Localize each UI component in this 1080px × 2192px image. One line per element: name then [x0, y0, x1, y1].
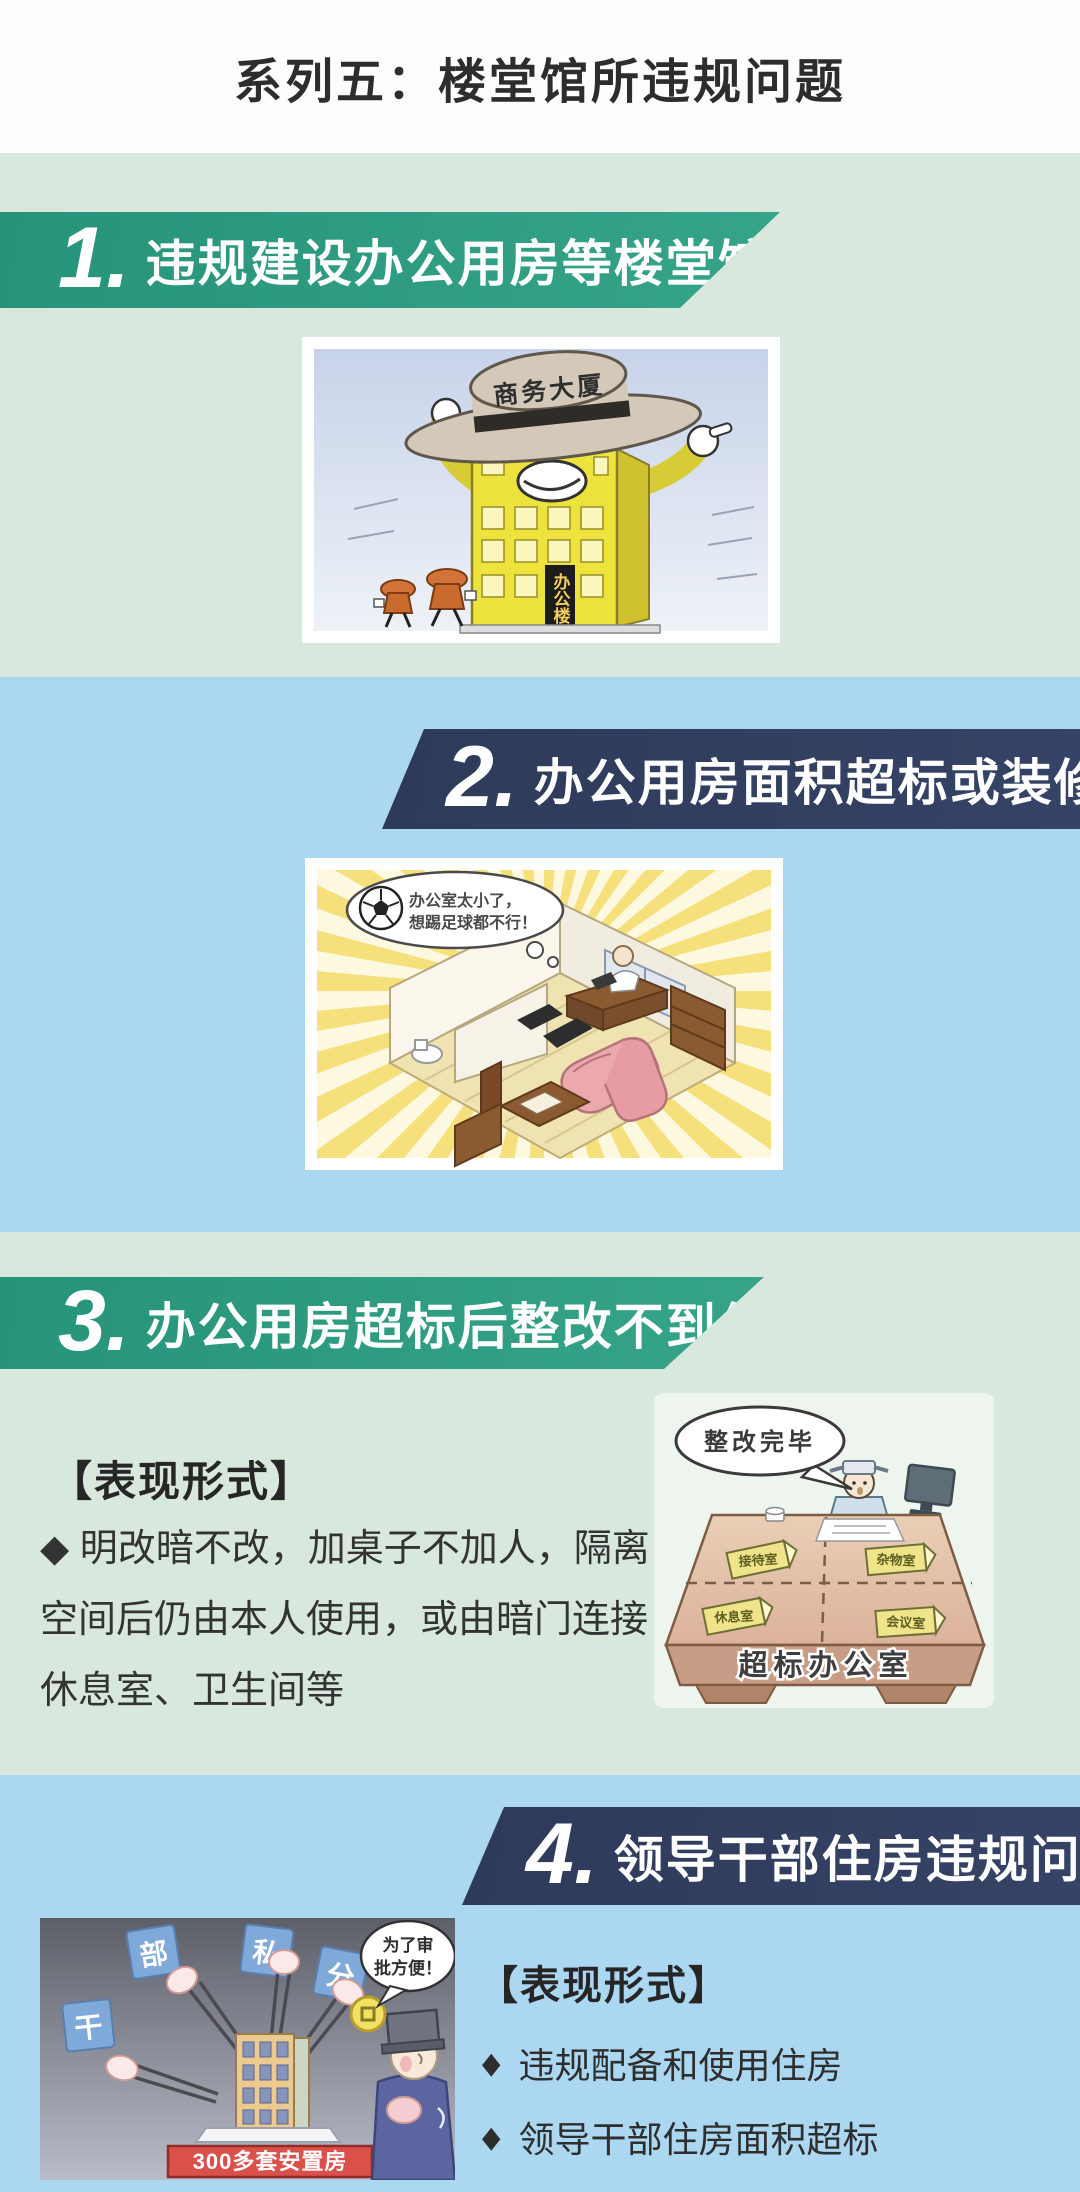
section-3-banner: 3. 办公用房超标后整改不到位	[0, 1277, 764, 1369]
monitor	[903, 1465, 955, 1520]
svg-text:300多套安置房: 300多套安置房	[193, 2149, 348, 2174]
section-4-format-heading: 【表现形式】	[478, 1953, 730, 2011]
section-4-title: 领导干部住房违规问题	[614, 1820, 1080, 1892]
section-3-format-heading: 【表现形式】	[50, 1448, 314, 1509]
bubble-line-2: 批方便！	[374, 1958, 442, 1978]
section-2-number: 2.	[446, 734, 534, 820]
smile-mouth	[518, 461, 586, 501]
desk-leg	[876, 1685, 956, 1703]
diamond-bullet-icon: ◆	[482, 2045, 500, 2081]
svg-text:会议室: 会议室	[886, 1614, 926, 1632]
section-4-bullet-2: ◆ 领导干部住房面积超标	[482, 2111, 878, 2163]
resettlement-building	[196, 2034, 340, 2142]
speech-bubble: 办公室太小了， 想踢足球都不行！	[347, 872, 563, 967]
section-2-title: 办公用房面积超标或装修超标	[534, 743, 1080, 815]
official-with-coin: 为了审 批方便！	[351, 1921, 455, 2180]
bubble-line-2: 想踢足球都不行！	[408, 913, 537, 932]
svg-text:休息室: 休息室	[713, 1608, 754, 1625]
office-room-cartoon: 办公室太小了， 想踢足球都不行！	[305, 858, 783, 1170]
section-3-number: 3.	[58, 1278, 146, 1364]
section-4-bullet-1: ◆ 违规配备和使用住房	[482, 2037, 842, 2089]
page-title: 系列五：楼堂馆所违规问题	[234, 42, 846, 112]
speech-bubble: 整改完毕	[676, 1407, 852, 1489]
svg-text:干: 干	[73, 2011, 104, 2045]
red-banner: 300多套安置房	[168, 2146, 372, 2177]
section-3: 3. 办公用房超标后整改不到位 【表现形式】 ◆ 明改暗不改，加桌子不加人，隔离…	[0, 1232, 1080, 1775]
illustration-housing-division: 干 部 私 分	[40, 1918, 455, 2180]
desk-leg	[696, 1685, 776, 1703]
svg-text:接待室: 接待室	[738, 1551, 778, 1569]
report-paper	[816, 1519, 904, 1541]
bubble-line-1: 为了审	[383, 1935, 434, 1955]
section-4: 4. 领导干部住房违规问题 干 部 私 分	[0, 1775, 1080, 2192]
section-1-number: 1.	[58, 215, 146, 301]
desk-cartoon: 接待室 杂物室 休息室 会议室 超标办公室	[654, 1393, 994, 1708]
bullet-text: 违规配备和使用住房	[518, 2037, 842, 2089]
illustration-oversized-office: 办公室太小了， 想踢足球都不行！	[305, 858, 783, 1170]
bubble-text: 整改完毕	[704, 1428, 816, 1456]
diamond-bullet-icon: ◆	[482, 2119, 500, 2155]
header: 系列五：楼堂馆所违规问题	[0, 0, 1080, 153]
desk-front-label: 超标办公室	[738, 1648, 913, 1682]
building-hat-cartoon: 办公楼 商务大厦	[302, 337, 780, 643]
illustration-building-with-hat: 办公楼 商务大厦	[302, 337, 780, 643]
office-building: 办公楼	[460, 447, 660, 633]
section-4-banner: 4. 领导干部住房违规问题	[462, 1807, 1080, 1905]
bullet-text: 领导干部住房面积超标	[518, 2111, 878, 2163]
teacup	[766, 1508, 784, 1522]
housing-cartoon: 干 部 私 分	[40, 1918, 455, 2180]
section-3-bullet-text: ◆ 明改暗不改，加桌子不加人，隔离空间后仍由本人使用，或由暗门连接休息室、卫生间…	[40, 1514, 655, 1727]
soccer-ball-icon	[360, 887, 402, 929]
illustration-partitioned-desk: 接待室 杂物室 休息室 会议室 超标办公室	[654, 1393, 994, 1708]
bubble-line-1: 办公室太小了，	[409, 891, 521, 910]
section-2-banner: 2. 办公用房面积超标或装修超标	[382, 729, 1080, 829]
section-2: 2. 办公用房面积超标或装修超标	[0, 677, 1080, 1232]
svg-text:杂物室: 杂物室	[876, 1552, 916, 1569]
section-4-number: 4.	[526, 1811, 614, 1897]
section-1-title: 违规建设办公用房等楼堂馆所	[146, 224, 822, 296]
speech-bubble: 为了审 批方便！	[361, 1921, 455, 2006]
building-sign-label: 办公楼	[551, 572, 571, 625]
section-3-title: 办公用房超标后整改不到位	[146, 1287, 770, 1359]
section-1-banner: 1. 违规建设办公用房等楼堂馆所	[0, 212, 780, 308]
plate	[196, 2128, 340, 2142]
svg-text:部: 部	[138, 1937, 171, 1972]
tag-gan: 干	[62, 1999, 115, 2052]
section-1: 1. 违规建设办公用房等楼堂馆所	[0, 153, 1080, 677]
